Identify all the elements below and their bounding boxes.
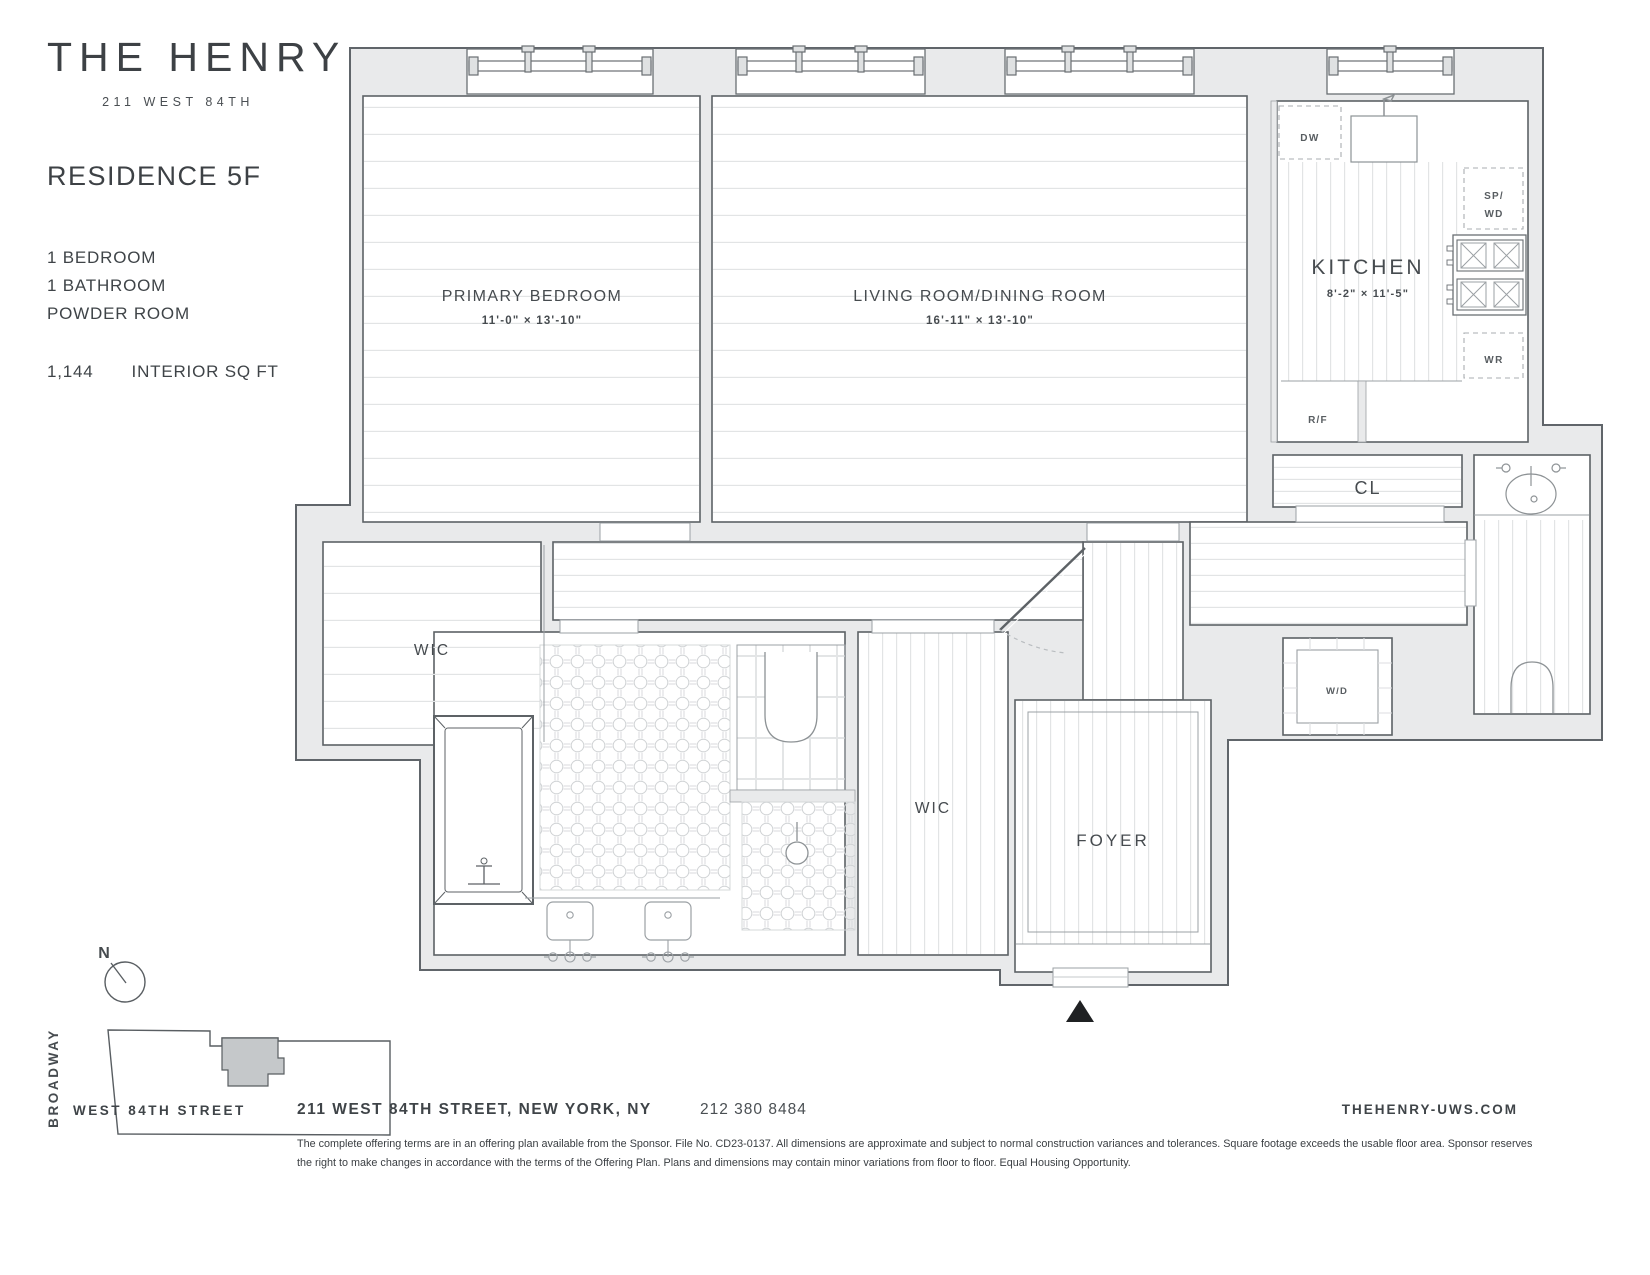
label-foyer: FOYER bbox=[1076, 831, 1150, 850]
dims-kitchen: 8'-2" × 11'-5" bbox=[1327, 288, 1409, 300]
vanity-sink-right bbox=[645, 902, 691, 940]
label-dw: DW bbox=[1300, 133, 1319, 144]
street-bottom-label: WEST 84TH STREET bbox=[73, 1103, 246, 1118]
range-stove-icon bbox=[1447, 235, 1526, 315]
label-wr: WR bbox=[1484, 355, 1503, 366]
rf-divider bbox=[1358, 381, 1366, 442]
entry-arrow bbox=[1066, 1000, 1094, 1022]
shower-head-icon bbox=[786, 842, 808, 864]
vanity-sink-left bbox=[547, 902, 593, 940]
kitchen-sink bbox=[1351, 116, 1417, 162]
shower bbox=[742, 802, 855, 930]
toilet-icon bbox=[765, 652, 817, 742]
label-wic-left: WIC bbox=[414, 642, 450, 659]
label-wd-stacked: WD bbox=[1484, 209, 1503, 220]
label-living: LIVING ROOM/DINING ROOM bbox=[853, 288, 1107, 305]
label-wic-hall: WIC bbox=[915, 800, 951, 817]
label-kitchen: KITCHEN bbox=[1311, 256, 1424, 279]
label-primary-bedroom: PRIMARY BEDROOM bbox=[442, 288, 622, 305]
compass-north-label: N bbox=[98, 945, 110, 962]
footer-website: THEHENRY-UWS.COM bbox=[1342, 1102, 1518, 1117]
footer-phone: 212 380 8484 bbox=[700, 1101, 807, 1119]
floorplan-page: { "brand": { "name": "THE HENRY", "addre… bbox=[0, 0, 1650, 1275]
label-sp: SP/ bbox=[1484, 191, 1504, 202]
label-rf: R/F bbox=[1308, 415, 1328, 426]
bathtub-icon bbox=[434, 716, 533, 904]
label-cl: CL bbox=[1354, 478, 1381, 498]
water-closet bbox=[737, 645, 845, 790]
dims-primary-bedroom: 11'-0" × 13'-10" bbox=[482, 315, 582, 327]
label-wd-closet: W/D bbox=[1326, 686, 1348, 697]
footer-address: 211 WEST 84TH STREET, NEW YORK, NY bbox=[297, 1101, 652, 1119]
dims-living: 16'-11" × 13'-10" bbox=[926, 315, 1034, 327]
floorplan-drawing: PRIMARY BEDROOM 11'-0" × 13'-10" LIVING … bbox=[0, 0, 1650, 1275]
broadway-label: BROADWAY bbox=[46, 1028, 61, 1128]
footer-disclaimer: The complete offering terms are in an of… bbox=[297, 1135, 1537, 1172]
